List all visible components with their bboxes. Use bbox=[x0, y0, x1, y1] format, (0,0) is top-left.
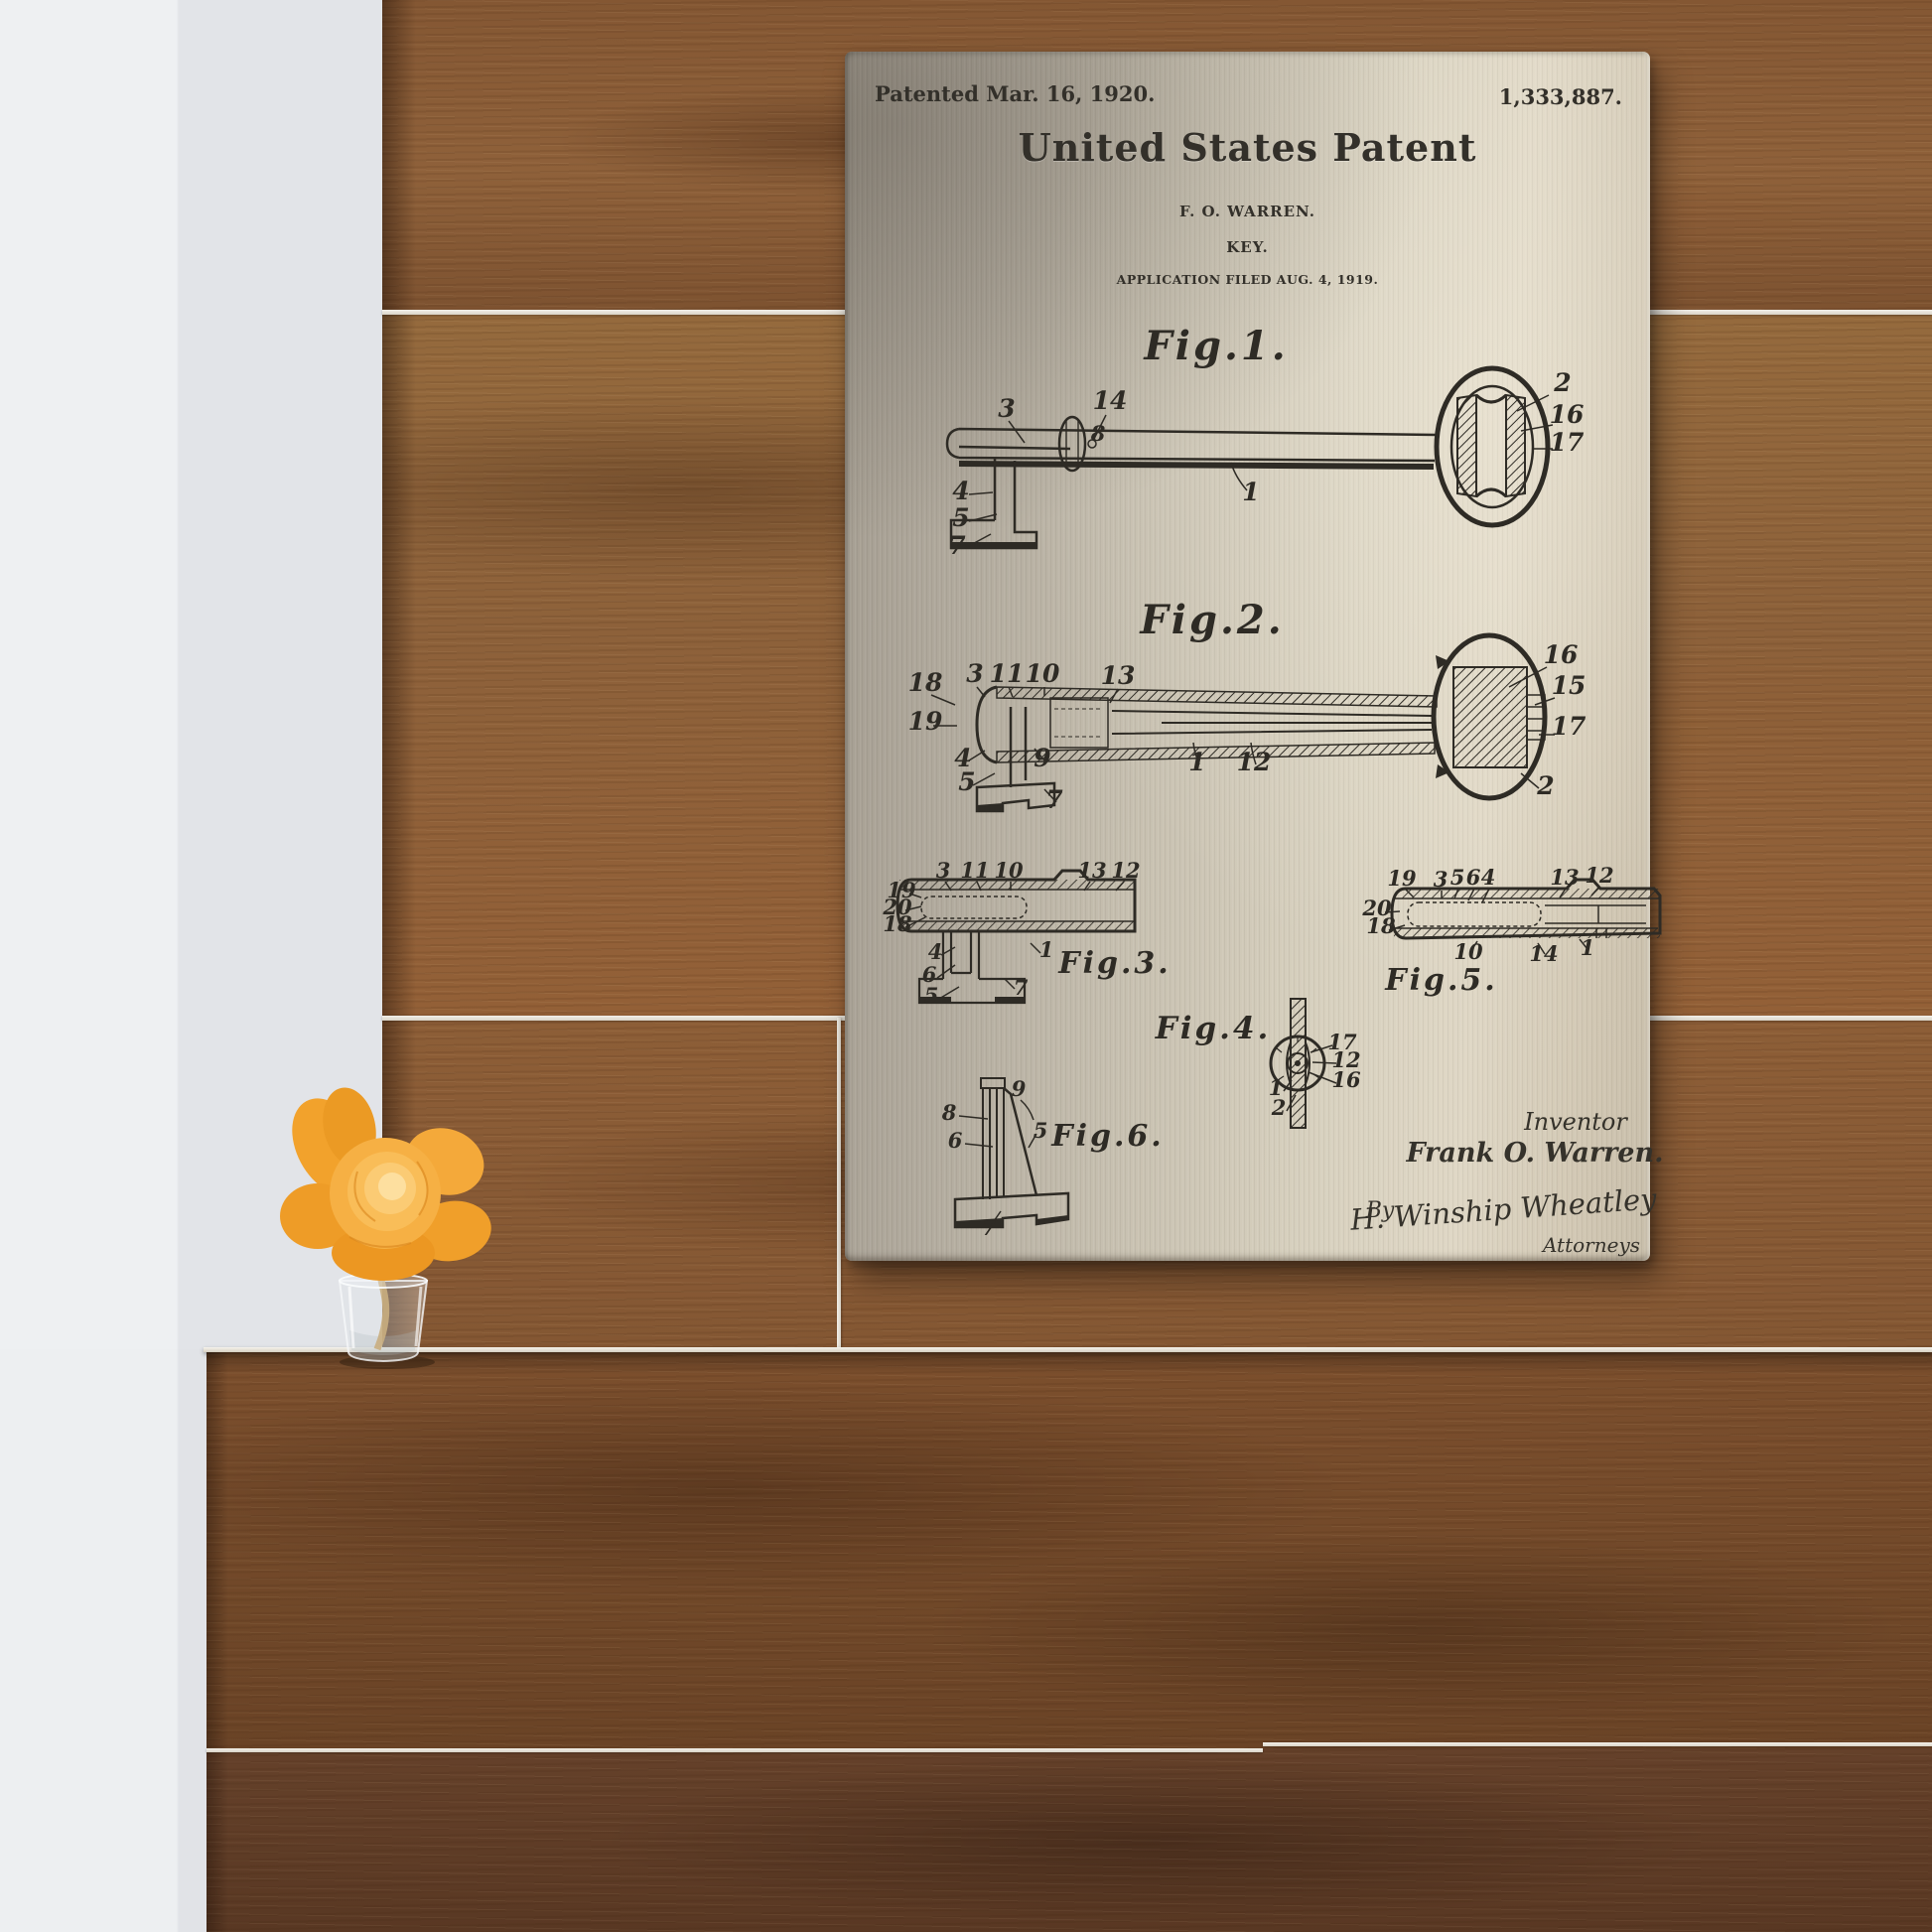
white-wall-upper bbox=[0, 0, 382, 1349]
shelf-plank-seam-right bbox=[1263, 1742, 1932, 1746]
plank-seam-vertical bbox=[837, 1018, 841, 1349]
application-filed-line: APPLICATION FILED AUG. 4, 1919. bbox=[845, 272, 1650, 287]
wood-shelf-front bbox=[207, 1349, 1932, 1932]
inventor-name-caps: F. O. WARREN. bbox=[845, 203, 1650, 220]
patent-number: 1,333,887. bbox=[1499, 84, 1622, 109]
patent-print-plate: Patented Mar. 16, 1920. 1,333,887. Unite… bbox=[845, 52, 1650, 1261]
invention-title: KEY. bbox=[845, 238, 1650, 256]
patent-title: United States Patent bbox=[845, 125, 1650, 170]
shelf-edge-shadow bbox=[207, 1352, 1932, 1374]
room-photo: Patented Mar. 16, 1920. 1,333,887. Unite… bbox=[0, 0, 1932, 1932]
white-wall-lower bbox=[0, 1349, 207, 1932]
patented-date: Patented Mar. 16, 1920. bbox=[875, 81, 1155, 106]
shelf-plank-seam-left bbox=[207, 1748, 1263, 1752]
shelf-plank-row-1 bbox=[207, 1349, 1932, 1748]
shelf-plank-row-2 bbox=[207, 1748, 1932, 1932]
